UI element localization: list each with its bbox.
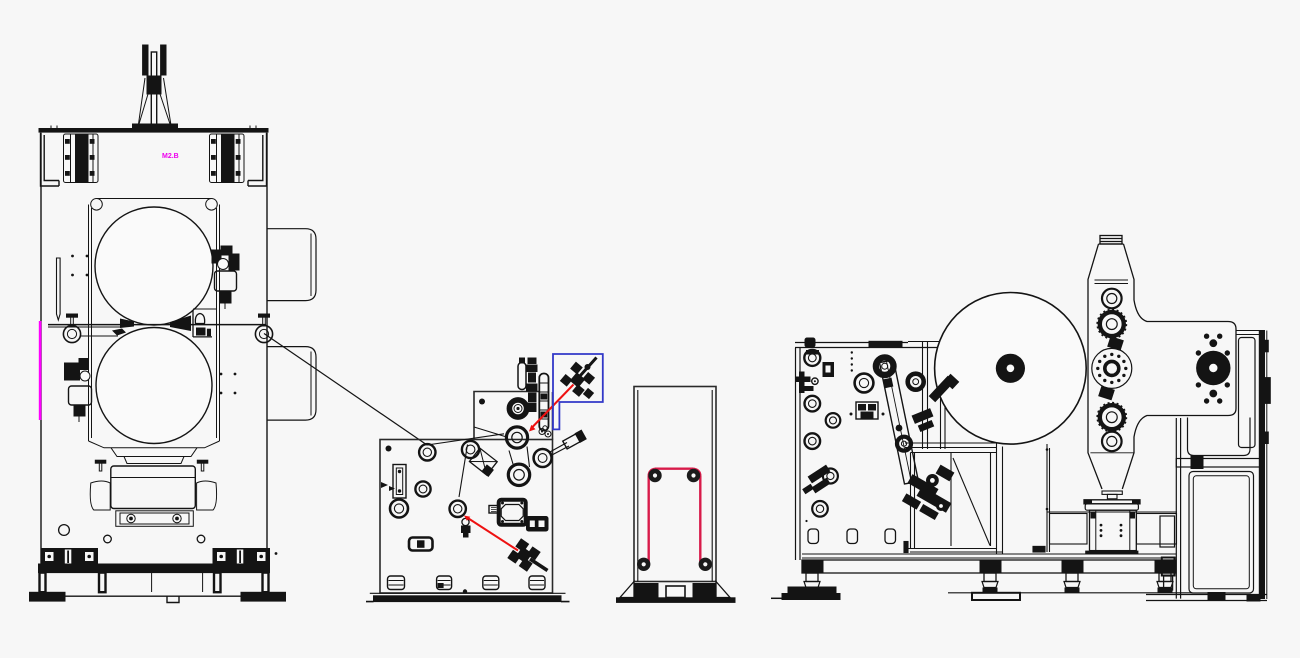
svg-text:M2.B: M2.B	[162, 153, 179, 160]
